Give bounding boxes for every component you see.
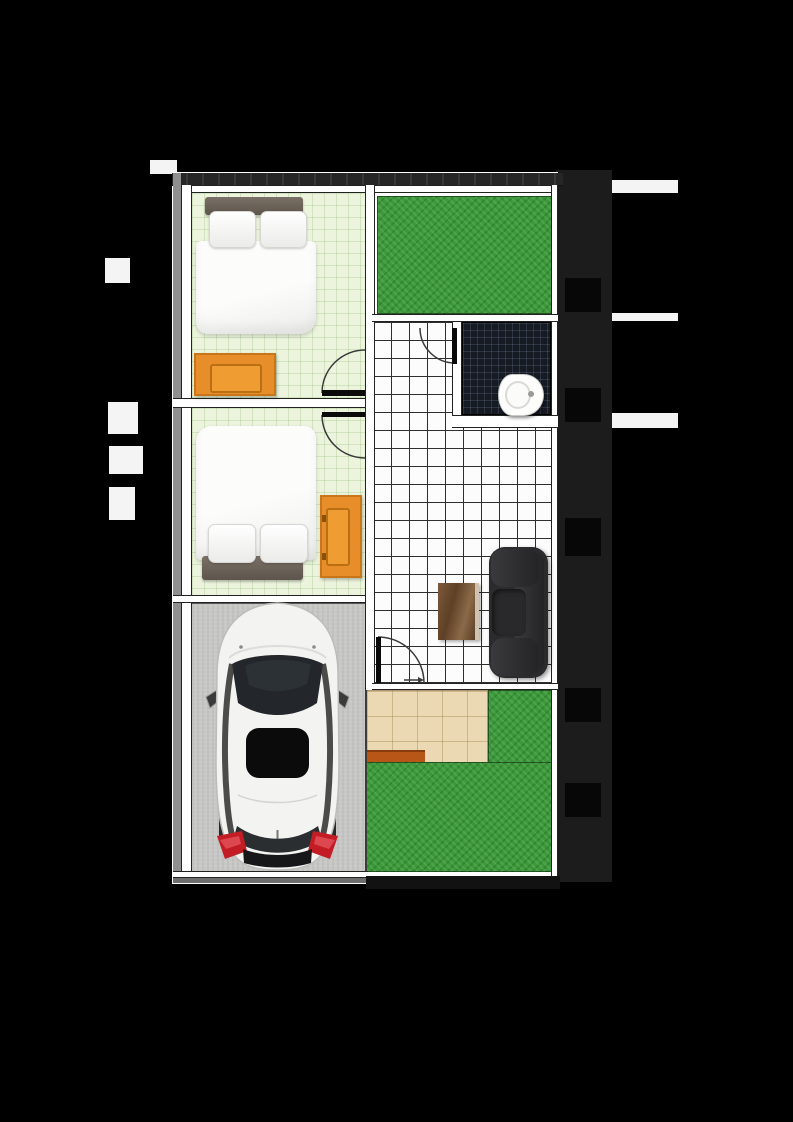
car-illustration [205,600,350,873]
margin-white-patch [105,258,130,283]
margin-white-patch [109,446,143,474]
margin-white-patch [108,402,138,434]
wall-bathroom-left [452,322,462,420]
margin-glyph [565,783,601,817]
sofa [489,547,548,678]
wardrobe-1-drawer [210,364,262,393]
wall-left-band [181,185,192,881]
floorplan-canvas [0,0,793,1122]
margin-glyph [565,688,601,722]
wardrobe-1 [194,353,276,396]
wall-carport-bottom-outer [173,878,368,883]
carport-terrace-divider [365,690,367,876]
wall-bedroom1-bedroom2 [173,398,372,408]
coffee-table [438,583,479,640]
sofa-armrest-bottom [491,638,539,676]
wardrobe-2-hinge [322,553,326,560]
sofa-seat [492,589,526,636]
wardrobe-2-door [326,508,350,566]
wardrobe-2-hinge [322,515,326,522]
garden-bottom-shadow [366,876,560,889]
door-opening-bedroom-1 [366,350,374,396]
bed-2-pillow-left [208,524,256,563]
margin-white-strip [612,413,678,428]
margin-glyph [565,518,601,556]
margin-white-strip [612,313,678,321]
coffee-table-edge [475,583,479,640]
terrace-step [366,750,425,762]
margin-white-patch [109,487,135,520]
sofa-armrest-top [491,549,539,587]
margin-glyph [565,388,601,422]
front-yard-grass [377,196,552,314]
toilet [498,374,544,416]
toilet-flush-button [528,391,534,397]
bed-2-pillow-right [260,524,308,563]
door-opening-bedroom-2 [366,415,374,460]
door-opening-terrace [380,684,425,689]
wall-bathroom-bottom [452,415,558,428]
car-top-view [205,600,350,873]
wall-right-band [551,185,558,880]
margin-glyph [565,278,601,312]
garden-grass-bottom [366,762,552,872]
wall-left-outer [173,173,181,882]
bed-1-pillow-left [209,211,256,248]
wall-under-front-yard [372,314,558,322]
bed-1-pillow-right [260,211,307,248]
bed-1-duvet [196,241,316,334]
wardrobe-2 [320,495,362,578]
toilet-seat [505,381,531,409]
margin-white-strip [612,180,678,193]
